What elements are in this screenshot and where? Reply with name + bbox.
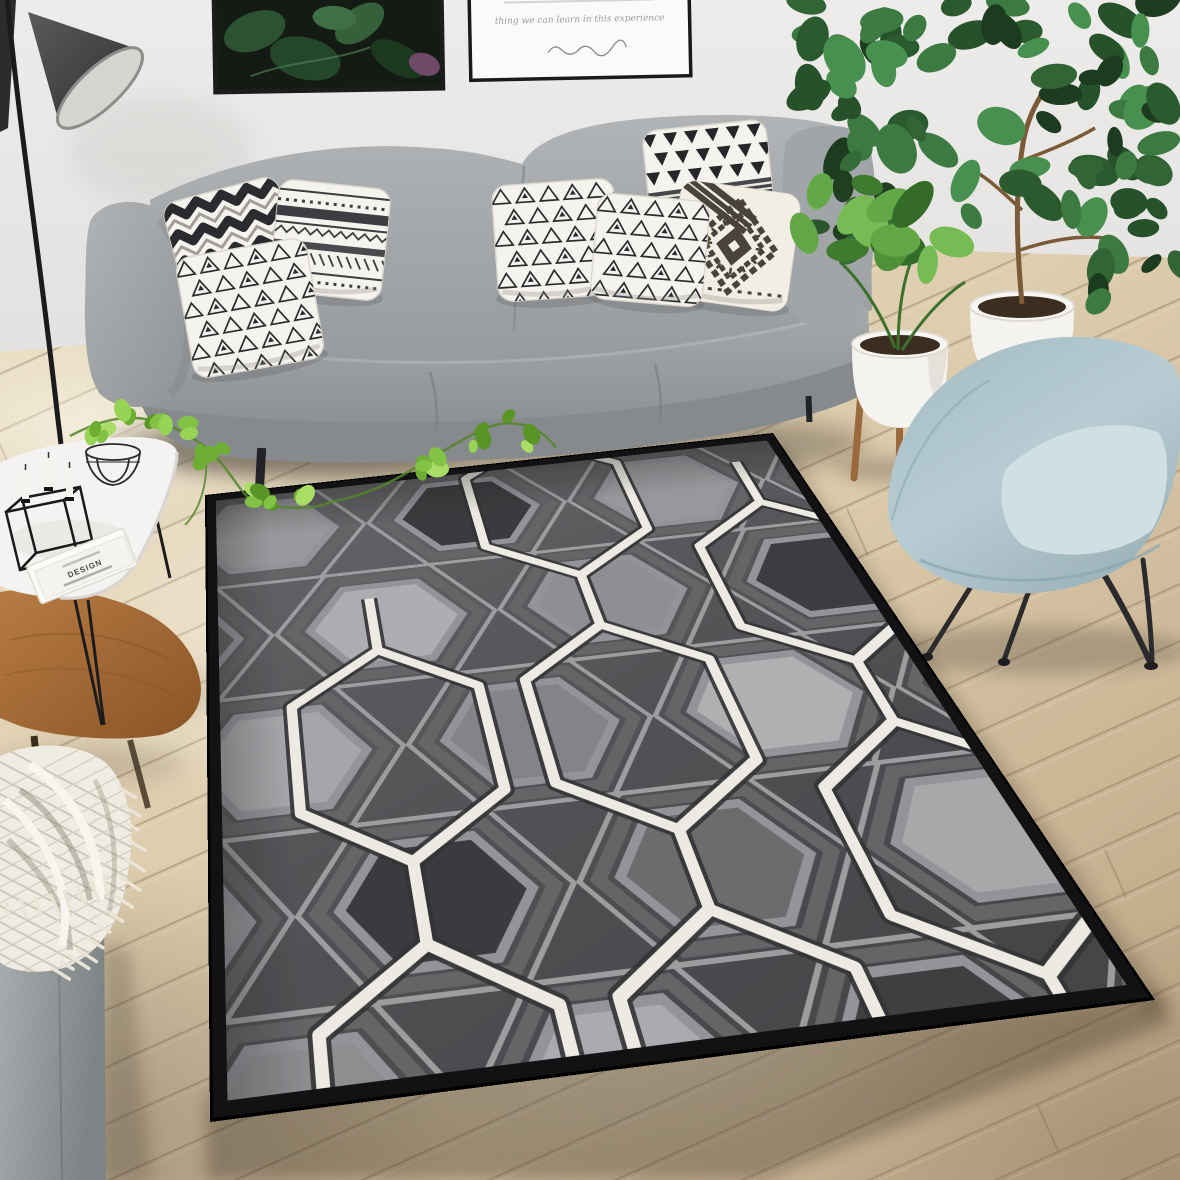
living-room-product-photo: thing we can learn in this experience [0, 0, 1180, 1180]
wall-art-botanical [214, 0, 444, 92]
wall-art-quote: thing we can learn in this experience [469, 0, 691, 80]
